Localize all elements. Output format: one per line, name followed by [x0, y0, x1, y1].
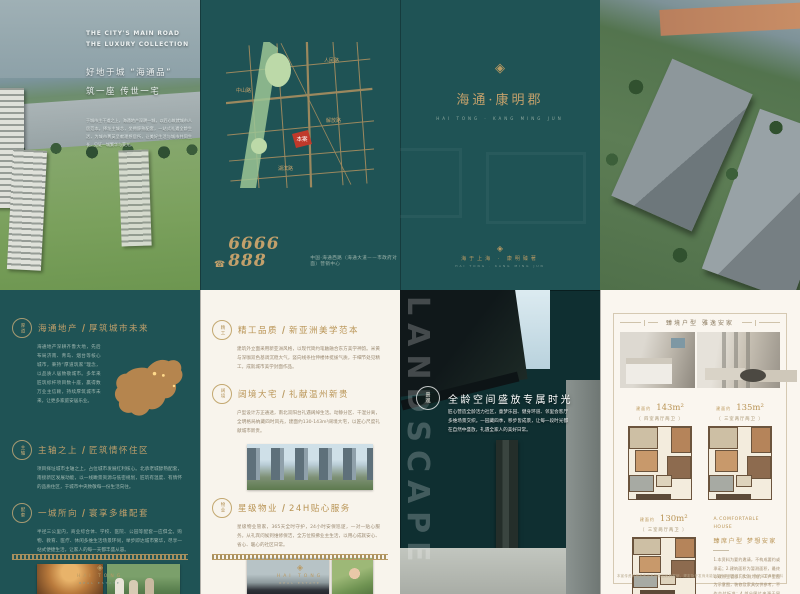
section-seal-icon: 配套 — [12, 503, 32, 523]
stone-wall — [566, 380, 600, 594]
plan-frame: 臻境户型 雅逸安家 — [613, 313, 787, 584]
section-title: 匠筑情怀住区 — [89, 444, 149, 456]
section-title: 厚筑城市未来 — [89, 322, 149, 334]
room-shape — [629, 427, 658, 449]
header-rule — [620, 322, 641, 323]
interior-photos — [620, 332, 780, 388]
room-shape — [633, 538, 662, 555]
floor-plan-130 — [632, 537, 696, 594]
panel-brand-story: 厚道 海通地产 厚筑城市未来 海通地产深耕齐鲁大地，先后布局济南、青岛、烟台等核… — [0, 290, 200, 594]
section-head: 景观 全龄空间 盛放专属时光 — [416, 386, 573, 410]
bottom-row: 厚道 海通地产 厚筑城市未来 海通地产深耕齐鲁大地，先后布局济南、青岛、烟台等核… — [0, 290, 800, 594]
city-star — [172, 385, 174, 387]
plan-row-top: 建面约 143m² 〔 四室两厅两卫 〕 建面约 — [620, 395, 780, 500]
divider-icon — [282, 504, 285, 512]
section-head: 物业 星级物业 24H贴心服务 — [200, 498, 400, 518]
room-shape — [715, 450, 737, 472]
layout-tag: 〔 三室两厅两卫 〕 — [708, 416, 772, 422]
slogan-zh-line1: 好地于城 “海通品” — [86, 65, 196, 82]
section-head: 主轴 主轴之上 匠筑情怀住区 — [0, 440, 200, 460]
slogan-zh-line2: 筑一座 传世一宅 — [86, 84, 196, 101]
section-head: 阔境 阔境大宅 礼献温州新贵 — [200, 384, 400, 404]
area-number: 135m² — [736, 403, 764, 413]
phone-row: ☎ 6666 888 中国·海通西路（海通大道——市政府对面）营销中心 — [214, 236, 400, 270]
layout-tag: 〔 四室两厅两卫 〕 — [628, 416, 692, 422]
divider-icon — [282, 390, 285, 398]
park-shape — [265, 53, 291, 87]
sofa-shape — [705, 368, 745, 380]
section-head: 精工 精工品质 新亚洲美学范本 — [200, 320, 400, 340]
section-title: 星级物业 — [238, 502, 278, 514]
section-title: 阔境大宅 — [238, 388, 278, 400]
tower-render — [118, 150, 151, 247]
brand-signature: ◈ 海于上海 · 康明臻著 HAI TONG · KANG MING JUN — [400, 245, 600, 268]
floor-plan-143 — [628, 426, 692, 500]
area-prefix: 建面约 — [636, 406, 651, 411]
phone-number: 6666 888 — [228, 236, 302, 270]
province-shape — [115, 360, 183, 416]
footer-logo-sub: REAL ESTATE — [0, 581, 200, 585]
legal-disclaimer: 本宣传资料相关内容不排除因政府规划、规定及开发商未能控制的原因而发生变化，敬请留… — [614, 573, 786, 578]
phone-icon: ☎ — [214, 260, 225, 270]
greek-key-border — [12, 554, 188, 560]
diamond-icon: ◈ — [200, 564, 400, 572]
balcony-shape — [716, 494, 751, 500]
section-seal-icon: 物业 — [212, 498, 232, 518]
slogan-en-line2: THE LUXURY COLLECTION — [86, 39, 196, 50]
road-label: 中山路 — [236, 87, 251, 94]
section-title: 盛放专属时光 — [498, 391, 573, 406]
top-row: THE CITY'S MAIN ROAD THE LUXURY COLLECTI… — [0, 0, 800, 290]
section-seal-icon: 景观 — [416, 386, 440, 410]
cover-slogan-block: THE CITY'S MAIN ROAD THE LUXURY COLLECTI… — [86, 28, 196, 149]
watermark-shape — [400, 148, 462, 218]
project-title: 海通·康明郡 — [400, 89, 600, 108]
section-body: 海通地产深耕齐鲁大地，先后布局济南、青岛、烟台等核心城市，秉持“厚道筑家”理念，… — [0, 338, 200, 430]
signature-en: HAI TONG · KANG MING JUN — [400, 264, 600, 268]
header-rule — [648, 322, 658, 323]
section-seal-icon: 精工 — [212, 320, 232, 340]
divider-icon — [282, 326, 285, 334]
room-shape — [656, 475, 672, 488]
footer-logo: ◈ HAI TONG REAL ESTATE — [200, 564, 400, 585]
vertical-watermark-text: LANDSCAPE — [400, 296, 435, 570]
tower-render — [7, 149, 47, 271]
brand-seal-icon: ◈ — [400, 62, 600, 75]
header-rule — [742, 322, 752, 323]
header-tick — [755, 320, 756, 326]
section-paragraph: 户型设计方正通透，南北双阳台礼遇阔绰生活。动静分区、干湿分离，全明格局纳藏四时风… — [237, 410, 380, 437]
plans-note-block: A.COMFORTABLE HOUSE 臻席户型 梦想安家 1.本资料为要约邀请… — [713, 516, 780, 594]
floor-plan-135 — [708, 426, 772, 500]
marker-label: 本案 — [296, 135, 308, 143]
ottoman-shape — [740, 369, 766, 382]
section-paragraph: 项目择址城市主轴之上，占位城市发展红利核心。北承老城醇熟配套，南接新区发展动能，… — [37, 466, 182, 493]
city-star — [152, 372, 156, 376]
panel-brand: ◈ 海通·康明郡 HAI TONG · KANG MING JUN ◈ 海于上海… — [400, 0, 600, 290]
section-paragraph: 匠心营造全龄活力社区，童梦乐园、健身环道、邻里会客厅多维场景交织。一园藏四季，移… — [448, 408, 568, 436]
bed-shape — [626, 364, 672, 384]
section-paragraph: 星级物业管家，365天全时守护，24小时安保巡逻，一对一贴心服务。从礼宾问候到维… — [237, 524, 380, 551]
city-star — [162, 374, 165, 377]
section-head: 厚道 海通地产 厚筑城市未来 — [0, 318, 200, 338]
tower-silhouettes — [247, 448, 373, 480]
panel-cover-slogan: THE CITY'S MAIN ROAD THE LUXURY COLLECTI… — [0, 0, 200, 290]
tree-blobs — [600, 0, 800, 290]
area-label: 建面约 143m² — [628, 395, 692, 414]
room-shape — [639, 556, 661, 573]
address-line: 中国·海通西路（海通大道——市政府对面）营销中心 — [310, 255, 400, 267]
section-title: 精工品质 — [238, 324, 278, 336]
diamond-icon: ◈ — [400, 245, 600, 253]
area-label: 建面约 135m² — [708, 395, 772, 414]
divider-icon — [82, 446, 85, 454]
aerial-photo-close — [600, 0, 800, 290]
section-paragraph: 海通地产深耕齐鲁大地，先后布局济南、青岛、烟台等核心城市，秉持“厚道筑家”理念，… — [37, 344, 101, 430]
header-tick — [644, 320, 645, 326]
area-label: 建面约 130m² — [620, 506, 707, 525]
balcony-shape — [636, 494, 671, 500]
map-svg: 本案 人民路 中山路 解放路 湖滨路 — [226, 42, 374, 188]
footer-logo-text: HAI TONG — [200, 574, 400, 579]
signature-zh: 海于上海 · 康明臻著 — [400, 255, 600, 262]
room-shape — [709, 475, 734, 492]
room-shape — [736, 475, 752, 488]
divider-icon — [82, 324, 85, 332]
balcony-shape — [640, 590, 675, 594]
road-label: 人民路 — [324, 57, 339, 64]
location-map: 本案 人民路 中山路 解放路 湖滨路 — [226, 42, 374, 192]
section-title: 新亚洲美学范本 — [289, 324, 359, 336]
panel-landscape: LANDSCAPE 景观 全龄空间 盛放专属时光 匠心营造全龄活力社区，童梦乐园… — [400, 290, 600, 594]
plan-card: 建面约 135m² 〔 三室两厅两卫 〕 — [708, 395, 772, 500]
section-title: 礼献温州新贵 — [289, 388, 349, 400]
brochure-sheet: THE CITY'S MAIN ROAD THE LUXURY COLLECTI… — [0, 0, 800, 594]
section-title: 一城所向 — [38, 507, 78, 519]
lake-shape — [251, 138, 267, 154]
footer-logo-sub: REAL ESTATE — [200, 581, 400, 585]
brand-block: ◈ 海通·康明郡 HAI TONG · KANG MING JUN — [400, 62, 600, 121]
note-title-zh: 臻席户型 梦想安家 — [713, 536, 780, 545]
plans-header-text: 臻境户型 雅逸安家 — [666, 318, 734, 327]
room-shape — [635, 450, 657, 472]
section-seal-icon: 厚道 — [12, 318, 32, 338]
greek-key-border — [212, 554, 388, 560]
plan-card: 建面约 143m² 〔 四室两厅两卫 〕 — [628, 395, 692, 500]
layout-tag: 〔 三室两厅两卫 〕 — [620, 527, 707, 533]
area-number: 130m² — [660, 514, 688, 524]
header-rule — [759, 322, 780, 323]
cover-paragraph: 于城市主干道之上，海通地产深耕一城，以匠心筑就城市人居范本。择址主城芯，坐拥醇熟… — [86, 117, 192, 149]
bedroom-photo — [620, 332, 695, 388]
room-shape — [709, 427, 738, 449]
section-head: 配套 一城所向 寰享多维配套 — [0, 503, 200, 523]
project-subtitle: HAI TONG · KANG MING JUN — [400, 116, 600, 121]
divider-icon — [82, 509, 85, 517]
plan-row-bottom: 建面约 130m² 〔 三室两厅两卫 〕 A.COMFORTABLE HOUSE — [620, 506, 780, 594]
road-label: 湖滨路 — [278, 165, 293, 172]
section-title: 海通地产 — [38, 322, 78, 334]
road-label: 解放路 — [326, 117, 341, 124]
room-shape — [671, 427, 691, 453]
province-map — [105, 342, 186, 430]
section-seal-icon: 主轴 — [12, 440, 32, 460]
section-paragraph: 半径三公里内，商业综合体、学校、医院、公园等配套一应俱全。购物、教育、医疗、休闲… — [37, 529, 182, 556]
area-prefix: 建面约 — [640, 517, 655, 522]
panel-location-map: 本案 人民路 中山路 解放路 湖滨路 ☎ 6666 888 中国·海通西路（海通… — [200, 0, 400, 290]
section-title: 全龄空间 — [448, 391, 498, 406]
area-prefix: 建面约 — [716, 406, 731, 411]
livingroom-photo — [697, 332, 780, 388]
building-render-photo — [247, 444, 373, 490]
panel-product-story: 精工 精工品质 新亚洲美学范本 建筑外立面采用新亚洲风格，以现代简约笔触融合东方… — [200, 290, 400, 594]
panel-cover-photo — [600, 0, 800, 290]
wall-art — [671, 338, 685, 348]
room-shape — [751, 427, 771, 453]
diamond-icon: ◈ — [0, 564, 200, 572]
room-shape — [675, 538, 695, 558]
plans-header: 臻境户型 雅逸安家 — [620, 318, 780, 327]
section-title: 寰享多维配套 — [89, 507, 149, 519]
note-rule — [713, 550, 729, 551]
section-title: 24H贴心服务 — [289, 502, 351, 514]
note-title-en: A.COMFORTABLE HOUSE — [713, 516, 780, 531]
section-paragraph: 建筑外立面采用新亚洲风格，以现代简约笔触融合东方美学神韵。米黄与深咖双色基调沉稳… — [237, 346, 380, 373]
room-shape — [629, 475, 654, 492]
plan-card: 建面约 130m² 〔 三室两厅两卫 〕 — [620, 506, 707, 594]
footer-logo-text: HAI TONG — [0, 574, 200, 579]
area-number: 143m² — [656, 403, 684, 413]
section-title: 主轴之上 — [38, 444, 78, 456]
panel-floor-plans: 臻境户型 雅逸安家 — [600, 290, 800, 594]
watermark-shape — [486, 152, 586, 224]
section-seal-icon: 阔境 — [212, 384, 232, 404]
slogan-en-line1: THE CITY'S MAIN ROAD — [86, 28, 196, 39]
footer-logo: ◈ HAI TONG REAL ESTATE — [0, 564, 200, 585]
